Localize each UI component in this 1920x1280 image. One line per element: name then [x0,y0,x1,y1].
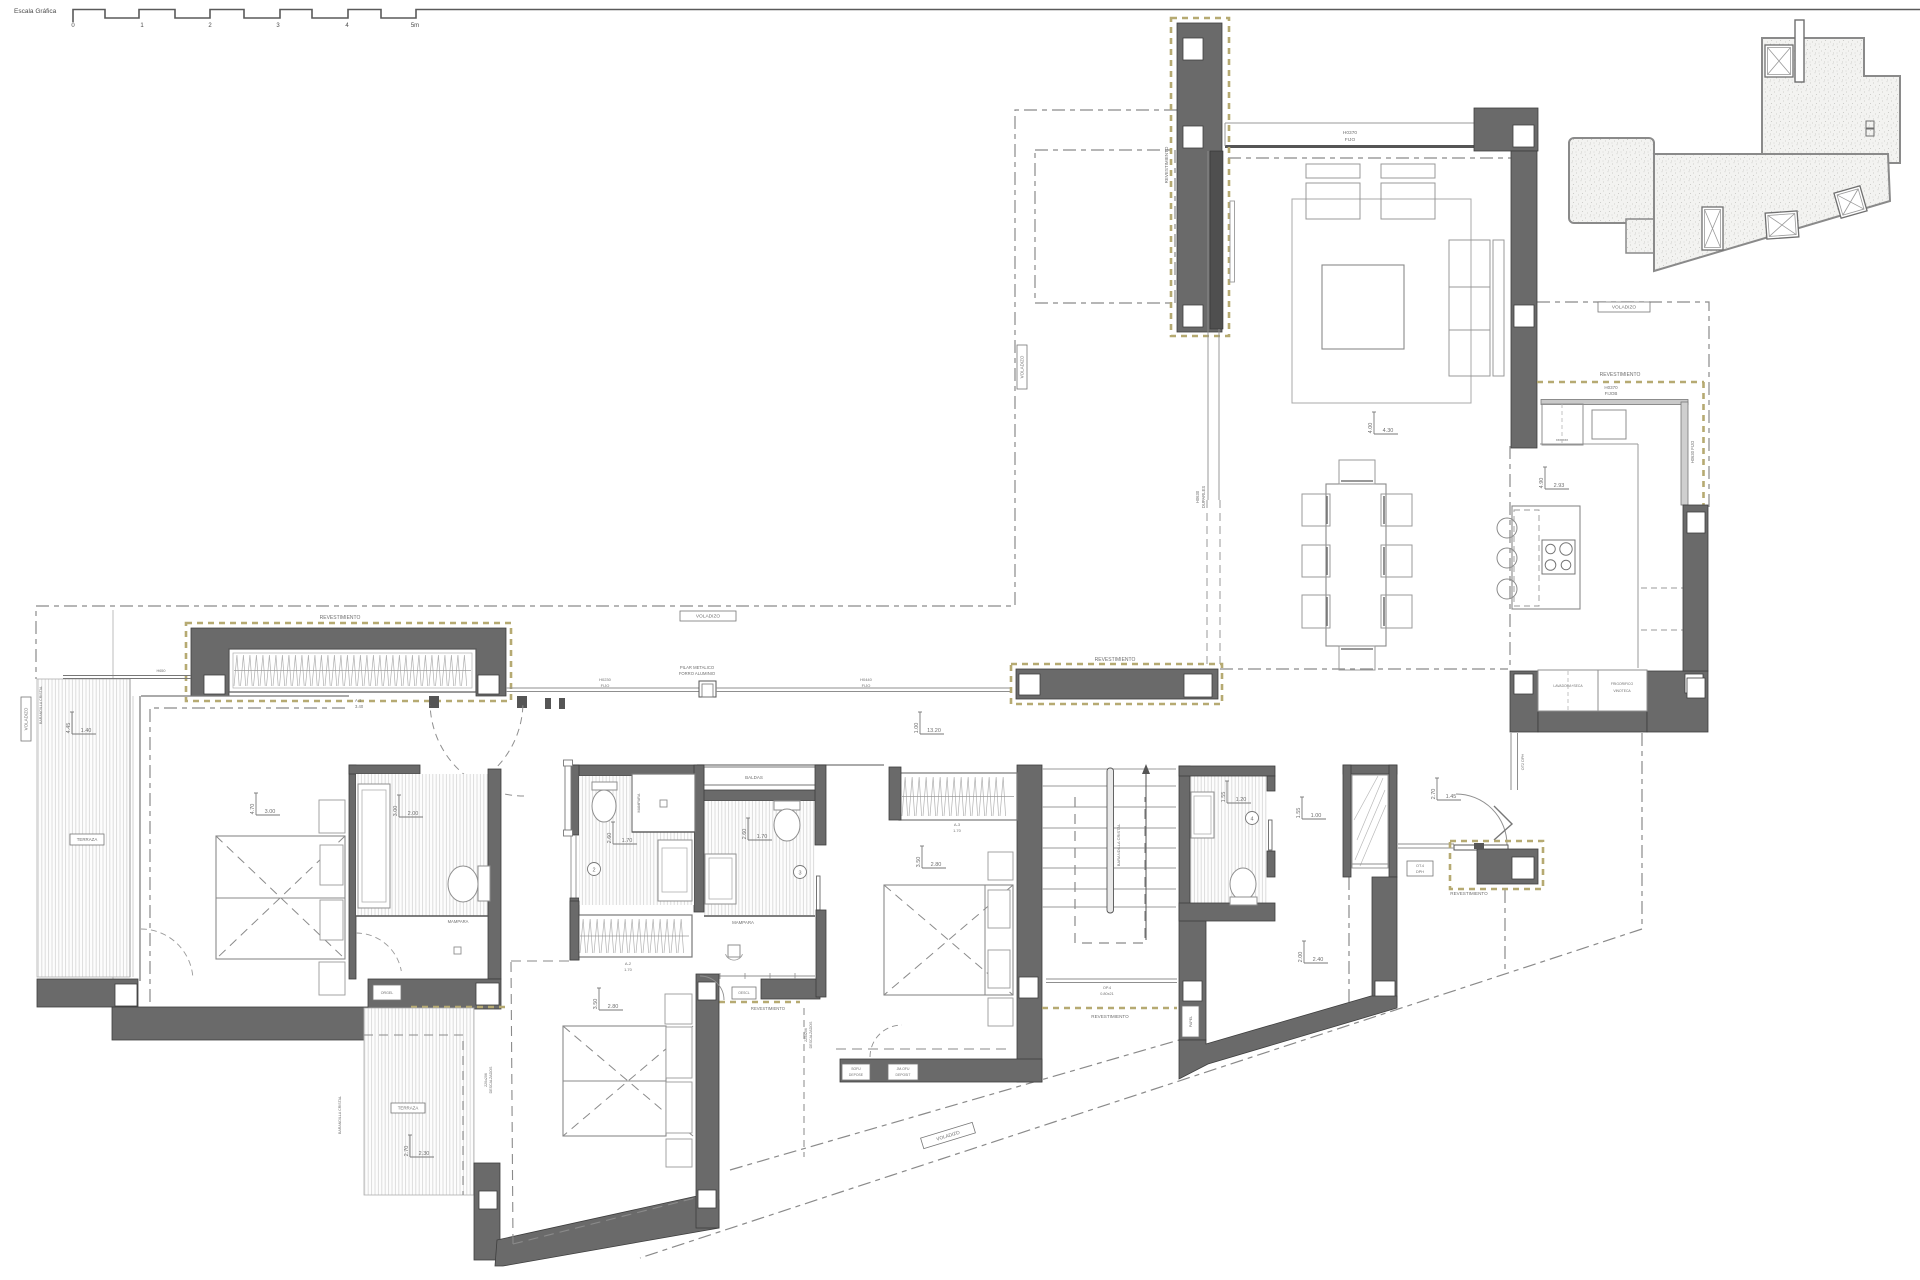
svg-text:BARANDILLA CRISTAL: BARANDILLA CRISTAL [39,686,43,724]
svg-text:1.00: 1.00 [914,723,920,734]
svg-text:xxxxxxx: xxxxxxx [1556,438,1569,442]
svg-text:1.70: 1.70 [953,828,962,833]
svg-text:2.40: 2.40 [1313,957,1324,963]
svg-text:1.40: 1.40 [81,728,92,734]
svg-text:3.40: 3.40 [355,704,364,709]
svg-text:1.00: 1.00 [1311,813,1322,819]
svg-text:FRIGORIFICO: FRIGORIFICO [1611,682,1634,686]
svg-text:3.00: 3.00 [393,806,399,817]
svg-text:2.80: 2.80 [608,1004,619,1010]
svg-text:OP.4: OP.4 [1103,986,1111,990]
svg-text:VOLADIZO: VOLADIZO [1612,305,1637,311]
svg-text:1.55: 1.55 [1296,808,1302,819]
svg-text:2.30: 2.30 [419,1151,430,1157]
svg-text:H0370: H0370 [1343,130,1357,136]
svg-text:2.00: 2.00 [408,811,419,817]
svg-text:3.50: 3.50 [916,857,922,868]
svg-text:H650: H650 [156,669,165,673]
svg-text:3.00: 3.00 [265,809,276,815]
svg-text:TERRAZA: TERRAZA [77,837,98,842]
svg-text:H0630 FIJO: H0630 FIJO [1690,440,1695,463]
svg-text:REVESTIMIENTO: REVESTIMIENTO [1164,146,1169,183]
svg-text:VOLADIZO: VOLADIZO [696,614,721,620]
svg-text:MAMPARA: MAMPARA [637,793,641,812]
svg-text:DESCALZADOS: DESCALZADOS [489,1066,493,1093]
svg-text:H0630: H0630 [1195,490,1200,503]
svg-text:2.60: 2.60 [742,829,748,840]
svg-text:H0230: H0230 [599,677,612,682]
svg-text:FORRO ALUMINIO: FORRO ALUMINIO [679,671,716,676]
svg-text:1.70: 1.70 [624,967,633,972]
svg-text:TERRAZA: TERRAZA [398,1106,419,1111]
svg-text:3.50: 3.50 [593,999,599,1010]
svg-text:PILAR METALICO: PILAR METALICO [680,665,715,670]
svg-text:A-3: A-3 [954,822,961,827]
svg-text:2.93: 2.93 [1554,483,1565,489]
svg-text:DEPOSIT: DEPOSIT [896,1073,911,1077]
svg-text:225x206: 225x206 [804,1028,808,1042]
svg-text:BARANDILLA CRISTAL: BARANDILLA CRISTAL [1116,823,1121,866]
svg-text:1.45: 1.45 [1446,794,1457,800]
svg-text:OESCL: OESCL [738,991,750,995]
svg-text:4.70: 4.70 [250,804,256,815]
svg-text:4.45: 4.45 [66,723,72,734]
svg-text:0.80x21: 0.80x21 [1100,992,1114,996]
svg-text:FIJO: FIJO [862,683,871,688]
svg-text:JM-OFU: JM-OFU [897,1067,910,1071]
svg-text:FIJOB: FIJOB [1605,391,1618,396]
svg-text:VOLADIZO: VOLADIZO [1020,355,1025,378]
svg-text:FIJO: FIJO [1345,137,1356,143]
svg-text:2: 2 [592,868,595,874]
svg-text:A.1: A.1 [355,698,362,703]
svg-text:BARANDILLA CRISTAL: BARANDILLA CRISTAL [338,1096,342,1134]
svg-text:13.20: 13.20 [927,728,941,734]
svg-text:1.70: 1.70 [622,838,633,844]
svg-text:4.30: 4.30 [1383,428,1394,434]
svg-text:PAPEL: PAPEL [1189,1016,1193,1027]
svg-text:1.20: 1.20 [1236,797,1247,803]
svg-text:REVESTIMIENTO: REVESTIMIENTO [1600,372,1641,378]
svg-text:H0370: H0370 [1604,385,1618,390]
svg-text:3: 3 [798,871,801,877]
svg-text:MAMPARA: MAMPARA [732,920,754,925]
svg-text:4: 4 [1250,817,1253,823]
svg-text:2.70: 2.70 [404,1146,410,1157]
svg-text:ORGEL: ORGEL [381,991,394,995]
svg-text:FIJO: FIJO [601,683,610,688]
svg-text:1.55: 1.55 [1221,792,1227,803]
svg-text:REVESTIMIENTO: REVESTIMIENTO [320,615,361,621]
svg-text:SOFU: SOFU [851,1067,861,1071]
svg-text:2.70: 2.70 [1431,789,1437,800]
svg-text:OT.4: OT.4 [1416,864,1424,868]
svg-text:MAMPARA: MAMPARA [448,919,469,924]
svg-text:VINOTECA: VINOTECA [1613,689,1631,693]
svg-text:1.70: 1.70 [757,834,768,840]
svg-text:DUPARLES: DUPARLES [1201,486,1206,508]
svg-text:DESCALZADOS: DESCALZADOS [809,1021,813,1048]
svg-text:DEPOSE: DEPOSE [849,1073,864,1077]
svg-text:REVESTIMIENTO: REVESTIMIENTO [1091,1014,1129,1019]
svg-text:DPH: DPH [1416,870,1424,874]
svg-text:REVESTIMIENTO: REVESTIMIENTO [751,1006,786,1011]
svg-text:5m: 5m [411,23,419,29]
svg-text:2.60: 2.60 [607,833,613,844]
svg-text:2.80: 2.80 [931,862,942,868]
svg-text:REVESTIMIENTO: REVESTIMIENTO [1450,891,1488,896]
svg-text:OT2 DPH: OT2 DPH [1521,754,1525,771]
svg-text:2.00: 2.00 [1298,952,1304,963]
svg-text:220x206: 220x206 [484,1073,488,1087]
svg-text:4.90: 4.90 [1539,478,1545,489]
svg-text:REVESTIMIENTO: REVESTIMIENTO [1095,657,1136,663]
svg-text:VOLADIZO: VOLADIZO [24,707,29,730]
svg-text:Escala Gráfica: Escala Gráfica [14,8,57,15]
svg-text:BALDAS: BALDAS [745,775,763,780]
svg-text:H0440: H0440 [860,677,873,682]
svg-text:A-2: A-2 [625,961,632,966]
svg-text:4.00: 4.00 [1368,423,1374,434]
